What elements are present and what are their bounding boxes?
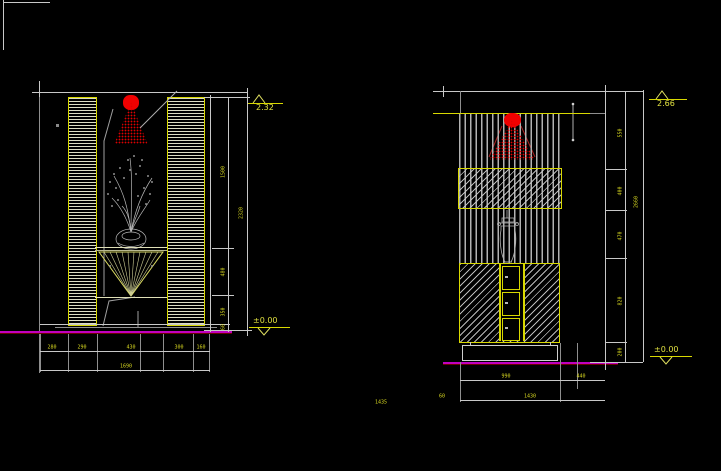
dim-tick (605, 169, 627, 170)
dim-label: 1435 (375, 401, 387, 406)
dim-tick (212, 248, 234, 249)
elevation-label: ±0.00 (253, 317, 278, 325)
dim-line (210, 95, 211, 332)
fan-decor (99, 252, 163, 297)
shelf-line (95, 250, 167, 251)
elevation-label: ±0.00 (654, 346, 679, 354)
plinth-step (470, 342, 471, 346)
extension-line (163, 334, 164, 372)
elevation-marker-icon (252, 94, 266, 103)
elevation-marker-icon (655, 90, 669, 99)
shelf-line (95, 247, 167, 248)
dim-line (40, 370, 210, 371)
dim-label: 280 (47, 346, 56, 351)
dim-line (40, 351, 210, 352)
dim-label: 480 (222, 267, 227, 276)
dim-line (460, 400, 605, 401)
dim-line (228, 97, 229, 332)
dim-label: 2660 (635, 196, 640, 208)
dim-label: 550 (619, 128, 624, 137)
dim-label: 1430 (524, 395, 536, 400)
dim-label: 290 (77, 346, 86, 351)
plinth (462, 345, 558, 361)
hatch-panel (458, 168, 562, 209)
dim-tick (212, 295, 234, 296)
dim-label: 160 (196, 346, 205, 351)
dim-tick (590, 362, 643, 363)
dim-label: 2320 (240, 207, 245, 219)
extension-line (460, 362, 461, 402)
drawer-handle-icon (505, 302, 508, 304)
dim-label: 350 (222, 307, 227, 316)
vase-graphic (492, 210, 524, 265)
dim-label: 820 (619, 296, 624, 305)
elevation-marker-icon (659, 357, 673, 365)
elevation-marker-icon (257, 328, 271, 336)
dim-line (605, 85, 606, 370)
dim-label: 440 (576, 375, 585, 380)
extension-line (97, 334, 98, 372)
baseline-shadow (0, 333, 232, 334)
dim-tick (605, 91, 643, 92)
plinth-step (550, 342, 551, 346)
cad-viewport: 280 290 430 300 160 1690 1500 480 350 60… (0, 0, 721, 471)
drawer (502, 318, 520, 341)
dim-label: 430 (126, 346, 135, 351)
dim-label: 300 (174, 346, 183, 351)
elevation-label: 2.66 (657, 100, 675, 108)
dim-tick (590, 113, 605, 114)
dim-label: 1500 (222, 166, 227, 178)
extension-line (193, 334, 194, 372)
dim-line (247, 88, 248, 336)
dim-tick (204, 97, 250, 98)
baseline-shadow (443, 364, 618, 365)
dim-tick (605, 210, 627, 211)
dim-tick (605, 342, 627, 343)
drawer (502, 266, 520, 290)
dim-tick (204, 330, 252, 331)
extension-line (68, 334, 69, 372)
elevation-label: 2.32 (256, 104, 274, 112)
drawer (502, 292, 520, 316)
extension-line (460, 91, 461, 113)
floor-line (40, 324, 230, 325)
plant-graphic (100, 148, 162, 252)
dim-label: 990 (501, 375, 510, 380)
dim-label: 60 (439, 395, 445, 400)
dim-line (460, 380, 605, 381)
dim-tick (443, 86, 444, 97)
dim-label: 60 (222, 324, 227, 330)
dim-label: 470 (619, 231, 624, 240)
extension-line (140, 334, 141, 372)
extension-line (40, 334, 41, 372)
extension-line (577, 343, 578, 389)
floor-line (55, 327, 217, 328)
extension-line (560, 343, 561, 402)
dim-label: 200 (619, 347, 624, 356)
dim-label: 1690 (120, 365, 132, 370)
counter-line (95, 297, 167, 298)
extension-line (209, 334, 210, 372)
dim-line (625, 91, 626, 362)
dim-label: 400 (619, 186, 624, 195)
dim-tick (605, 258, 627, 259)
drawer-handle-icon (505, 276, 508, 278)
dim-line (643, 90, 644, 362)
drawer-handle-icon (505, 327, 508, 329)
